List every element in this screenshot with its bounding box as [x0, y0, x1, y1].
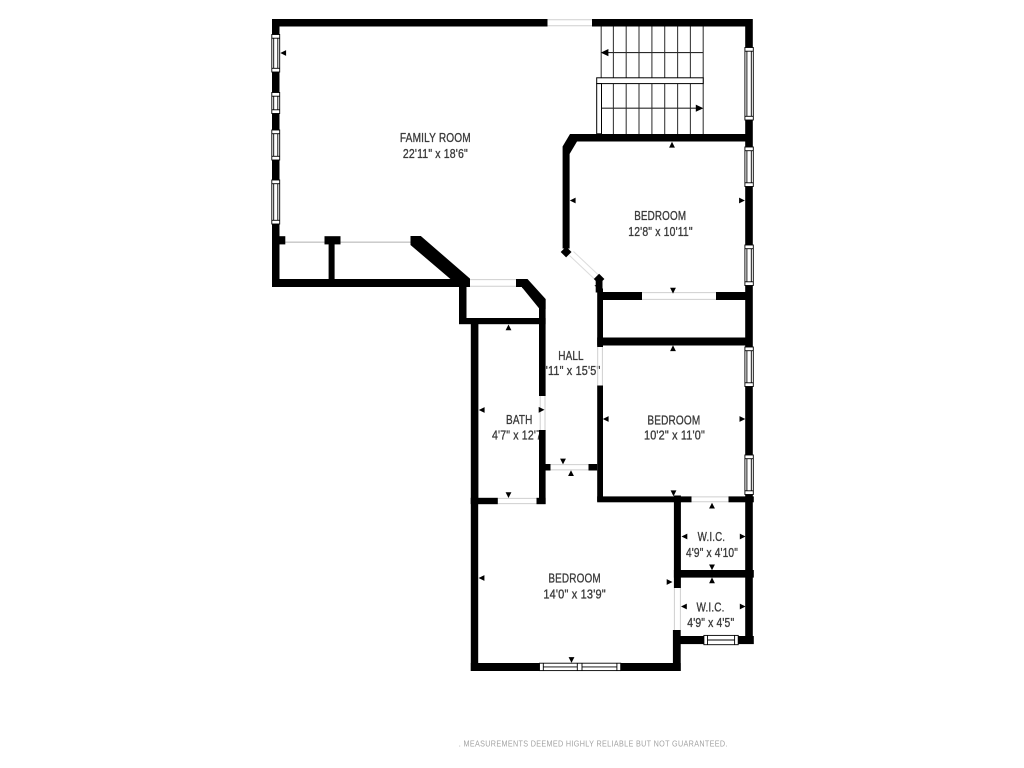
svg-text:4'9" x 4'10": 4'9" x 4'10" — [686, 546, 738, 560]
svg-text:BEDROOM: BEDROOM — [634, 209, 686, 223]
svg-text:W.I.C.: W.I.C. — [698, 530, 726, 544]
svg-text:FAMILY ROOM: FAMILY ROOM — [400, 131, 471, 145]
svg-text:W.I.C.: W.I.C. — [697, 600, 725, 614]
svg-text:3'11" x 15'5": 3'11" x 15'5" — [540, 364, 601, 378]
svg-text:22'11" x 18'6": 22'11" x 18'6" — [403, 147, 468, 161]
svg-text:BEDROOM: BEDROOM — [647, 414, 700, 428]
svg-text:. MEASUREMENTS DEEMED HIGHLY R: . MEASUREMENTS DEEMED HIGHLY RELIABLE BU… — [459, 738, 728, 748]
svg-text:BATH: BATH — [506, 413, 533, 427]
svg-text:12'8" x 10'11": 12'8" x 10'11" — [628, 225, 693, 239]
svg-text:10'2" x 11'0": 10'2" x 11'0" — [644, 429, 705, 443]
svg-text:4'9" x 4'5": 4'9" x 4'5" — [687, 616, 734, 630]
svg-text:BEDROOM: BEDROOM — [548, 572, 601, 586]
svg-text:4'7" x 12'7": 4'7" x 12'7" — [492, 428, 546, 442]
svg-text:14'0" x 13'9": 14'0" x 13'9" — [543, 588, 606, 602]
svg-text:HALL: HALL — [558, 349, 584, 363]
